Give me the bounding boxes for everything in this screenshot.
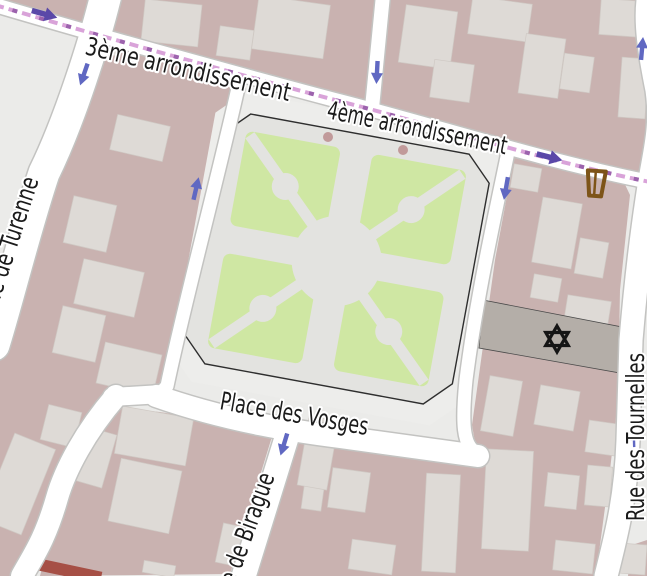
building: [216, 26, 254, 60]
waste-basket-stripe: [594, 172, 596, 195]
building: [560, 53, 595, 93]
building: [510, 164, 542, 192]
building: [252, 0, 331, 59]
building: [421, 473, 460, 573]
building: [534, 385, 580, 431]
building: [553, 540, 596, 574]
building: [544, 472, 579, 509]
building: [518, 34, 566, 99]
building: [585, 420, 619, 456]
rue-des-tournelles-label: Rue des Tournelles: [621, 353, 647, 521]
map-canvas[interactable]: 3ème arrondissement 4ème arrondissement …: [0, 0, 647, 576]
building: [327, 468, 370, 513]
building: [398, 5, 458, 70]
building: [108, 458, 182, 533]
building: [481, 449, 533, 551]
building: [430, 59, 475, 102]
building: [584, 465, 612, 507]
square-dot: [398, 145, 408, 155]
building: [348, 539, 396, 575]
building: [530, 274, 562, 302]
square-dot: [323, 132, 333, 142]
building: [141, 0, 202, 47]
building: [574, 238, 609, 278]
